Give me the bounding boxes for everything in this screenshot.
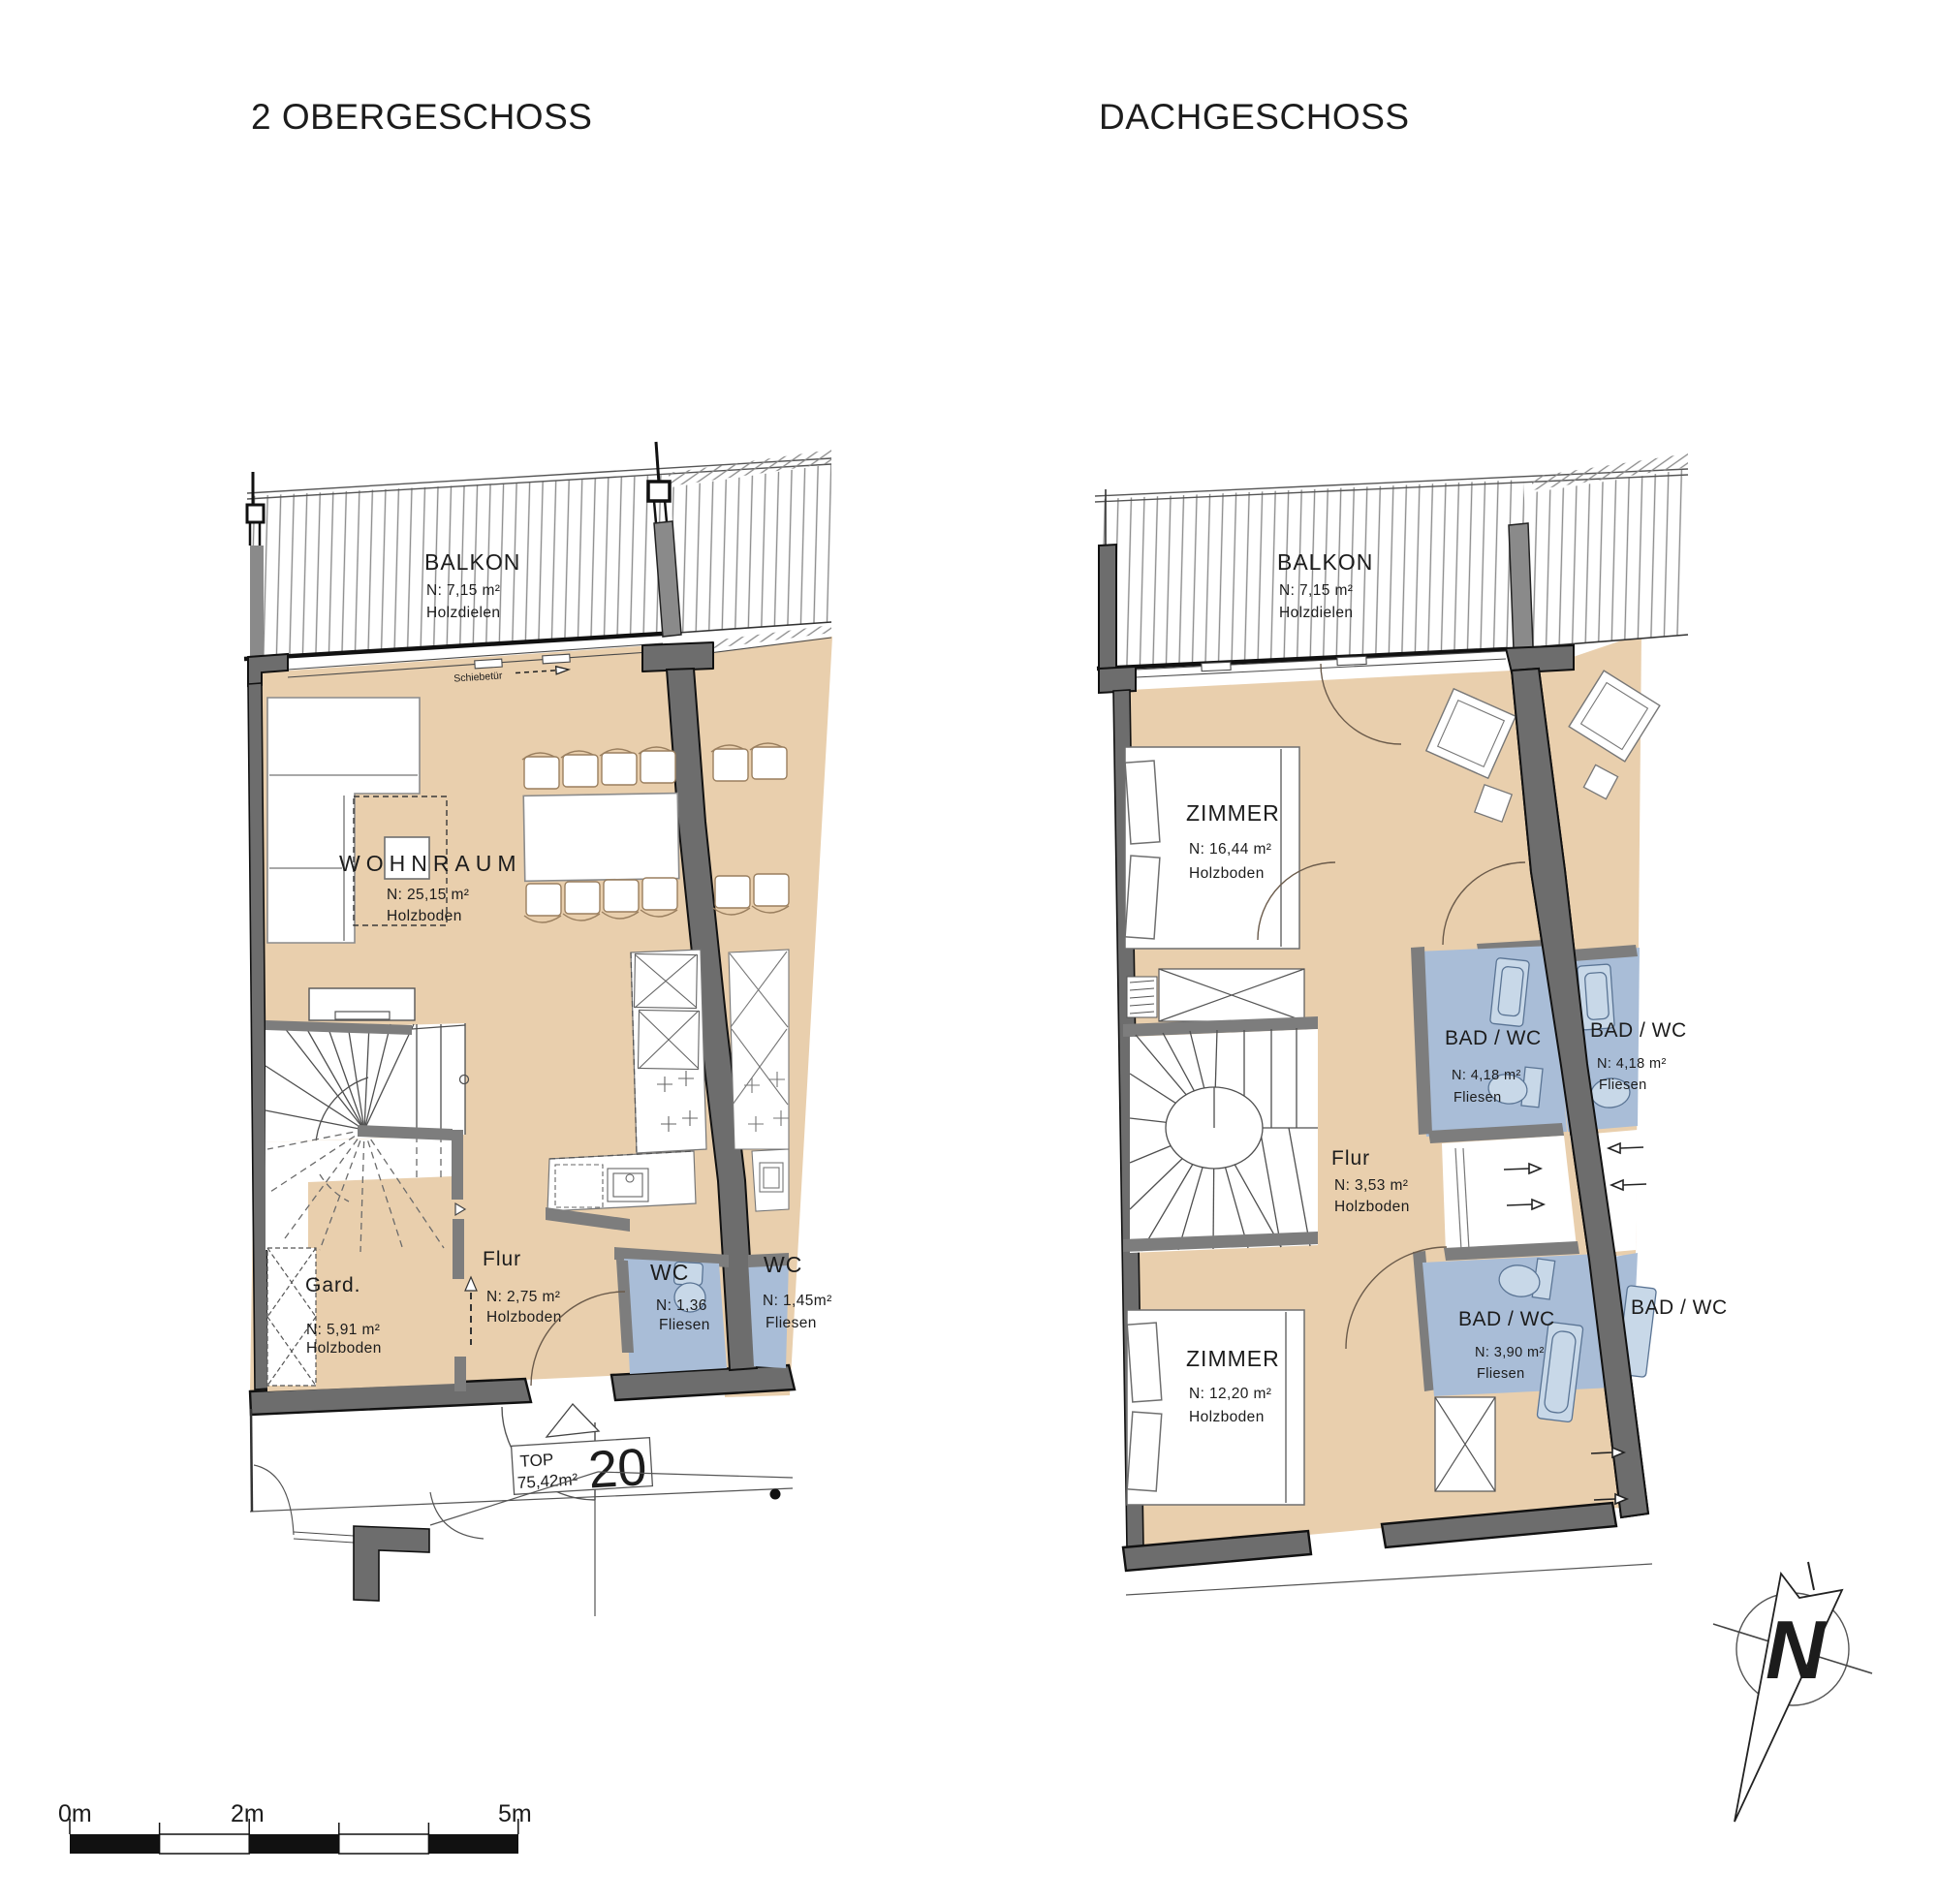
svg-text:BAD / WC: BAD / WC xyxy=(1445,1027,1542,1049)
svg-text:2 OBERGESCHOSS: 2 OBERGESCHOSS xyxy=(251,97,592,137)
svg-text:DACHGESCHOSS: DACHGESCHOSS xyxy=(1099,97,1410,137)
svg-text:Fliesen: Fliesen xyxy=(1453,1090,1502,1106)
svg-text:N: 25,15 m²: N: 25,15 m² xyxy=(387,887,469,903)
svg-text:2m: 2m xyxy=(231,1800,265,1827)
svg-text:5m: 5m xyxy=(498,1800,532,1827)
svg-text:N: 1,36: N: 1,36 xyxy=(656,1297,707,1314)
svg-text:N: 3,53 m²: N: 3,53 m² xyxy=(1334,1177,1408,1194)
svg-text:Holzboden: Holzboden xyxy=(486,1309,562,1326)
svg-text:ZIMMER: ZIMMER xyxy=(1186,800,1280,826)
svg-text:Fliesen: Fliesen xyxy=(1599,1077,1647,1093)
svg-text:Flur: Flur xyxy=(1331,1147,1370,1170)
svg-text:Fliesen: Fliesen xyxy=(659,1317,710,1333)
svg-text:Fliesen: Fliesen xyxy=(766,1315,817,1331)
svg-text:BAD / WC: BAD / WC xyxy=(1631,1296,1728,1319)
svg-text:N: 2,75 m²: N: 2,75 m² xyxy=(486,1289,560,1305)
svg-text:WC: WC xyxy=(650,1260,689,1285)
svg-text:N: 7,15 m²: N: 7,15 m² xyxy=(1279,582,1353,599)
svg-text:Fliesen: Fliesen xyxy=(1477,1366,1525,1382)
svg-text:BAD / WC: BAD / WC xyxy=(1458,1308,1555,1330)
svg-text:WOHNRAUM: WOHNRAUM xyxy=(339,851,522,876)
svg-text:Holzboden: Holzboden xyxy=(1334,1199,1410,1215)
svg-text:N: 1,45m²: N: 1,45m² xyxy=(763,1293,832,1309)
svg-text:N: 16,44 m²: N: 16,44 m² xyxy=(1189,841,1271,858)
svg-text:Holzboden: Holzboden xyxy=(387,908,462,924)
svg-text:20: 20 xyxy=(586,1438,648,1500)
svg-text:BALKON: BALKON xyxy=(1277,549,1373,575)
svg-text:Flur: Flur xyxy=(483,1248,521,1270)
svg-text:N: 4,18 m²: N: 4,18 m² xyxy=(1597,1056,1667,1072)
svg-text:N: 12,20 m²: N: 12,20 m² xyxy=(1189,1386,1271,1402)
svg-text:Holzdielen: Holzdielen xyxy=(1279,605,1353,621)
svg-text:Holzboden: Holzboden xyxy=(1189,1409,1265,1425)
svg-text:N: 5,91 m²: N: 5,91 m² xyxy=(306,1322,380,1338)
svg-text:N: 4,18 m²: N: 4,18 m² xyxy=(1452,1068,1521,1083)
svg-text:Gard.: Gard. xyxy=(305,1274,361,1296)
svg-text:BAD / WC: BAD / WC xyxy=(1590,1019,1687,1042)
svg-text:Holzdielen: Holzdielen xyxy=(426,605,500,621)
svg-text:N: N xyxy=(1766,1605,1827,1697)
svg-text:0m: 0m xyxy=(58,1800,92,1827)
svg-text:TOP: TOP xyxy=(519,1451,554,1471)
svg-text:N: 3,90 m²: N: 3,90 m² xyxy=(1475,1345,1545,1360)
svg-text:BALKON: BALKON xyxy=(424,549,520,575)
svg-text:N: 7,15 m²: N: 7,15 m² xyxy=(426,582,500,599)
svg-text:Holzboden: Holzboden xyxy=(1189,865,1265,882)
svg-text:Holzboden: Holzboden xyxy=(306,1340,382,1357)
svg-text:ZIMMER: ZIMMER xyxy=(1186,1346,1280,1371)
svg-text:WC: WC xyxy=(764,1252,802,1277)
